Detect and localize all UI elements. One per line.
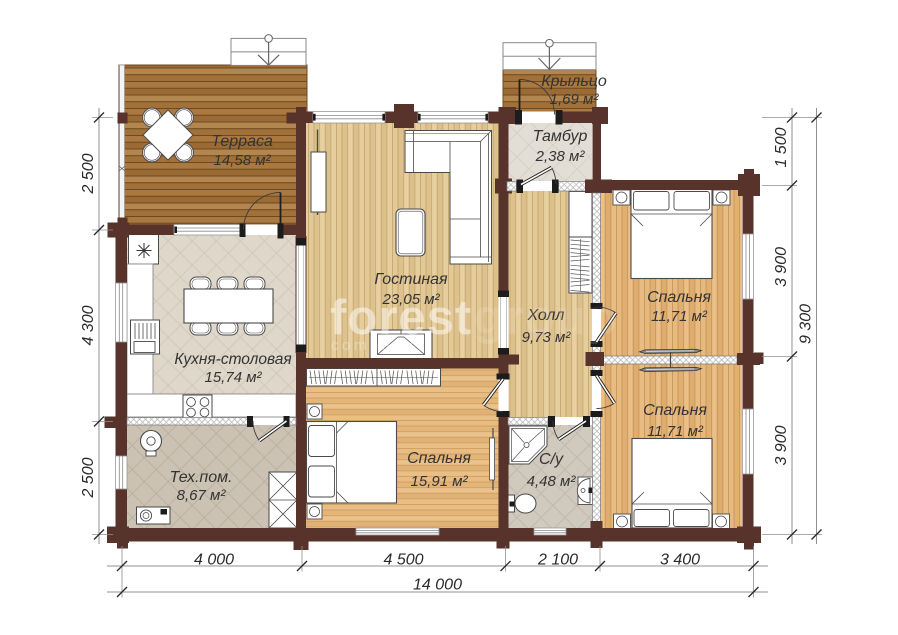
- svg-text:2 100: 2 100: [537, 552, 578, 569]
- svg-text:4 500: 4 500: [383, 552, 423, 569]
- svg-text:4 300: 4 300: [80, 305, 97, 345]
- svg-text:2 500: 2 500: [80, 153, 97, 194]
- svg-text:Терраса: Терраса: [211, 133, 273, 150]
- svg-text:Тех.пом.: Тех.пом.: [170, 469, 233, 486]
- svg-text:1,69 м²: 1,69 м²: [550, 91, 600, 108]
- svg-text:15,91 м²: 15,91 м²: [411, 473, 469, 490]
- svg-text:3 400: 3 400: [660, 552, 700, 569]
- svg-text:company: company: [331, 337, 416, 354]
- svg-text:Тамбур: Тамбур: [533, 128, 588, 145]
- svg-text:Спальня: Спальня: [643, 402, 707, 419]
- svg-text:Спальня: Спальня: [407, 450, 471, 467]
- svg-text:4,48 м²: 4,48 м²: [527, 473, 577, 490]
- svg-text:Крыльцо: Крыльцо: [541, 73, 607, 90]
- svg-text:2 500: 2 500: [80, 457, 97, 498]
- svg-text:9 300: 9 300: [798, 304, 815, 344]
- svg-text:8,67 м²: 8,67 м²: [177, 487, 227, 504]
- svg-text:11,71 м²: 11,71 м²: [651, 308, 708, 325]
- svg-text:11,71 м²: 11,71 м²: [647, 423, 704, 440]
- svg-text:4 000: 4 000: [194, 552, 234, 569]
- svg-text:3 900: 3 900: [773, 247, 790, 287]
- svg-text:14,58 м²: 14,58 м²: [214, 152, 272, 169]
- svg-text:3 900: 3 900: [773, 425, 790, 465]
- svg-text:group: group: [474, 291, 618, 345]
- svg-text:Гостиная: Гостиная: [374, 271, 448, 288]
- svg-text:С/у: С/у: [539, 451, 564, 468]
- svg-text:14 000: 14 000: [413, 577, 462, 594]
- svg-text:15,74 м²: 15,74 м²: [205, 369, 263, 386]
- svg-text:1 500: 1 500: [773, 127, 790, 167]
- svg-text:Спальня: Спальня: [647, 289, 711, 306]
- svg-text:2,38 м²: 2,38 м²: [535, 148, 586, 165]
- svg-text:Кухня-столовая: Кухня-столовая: [174, 351, 291, 368]
